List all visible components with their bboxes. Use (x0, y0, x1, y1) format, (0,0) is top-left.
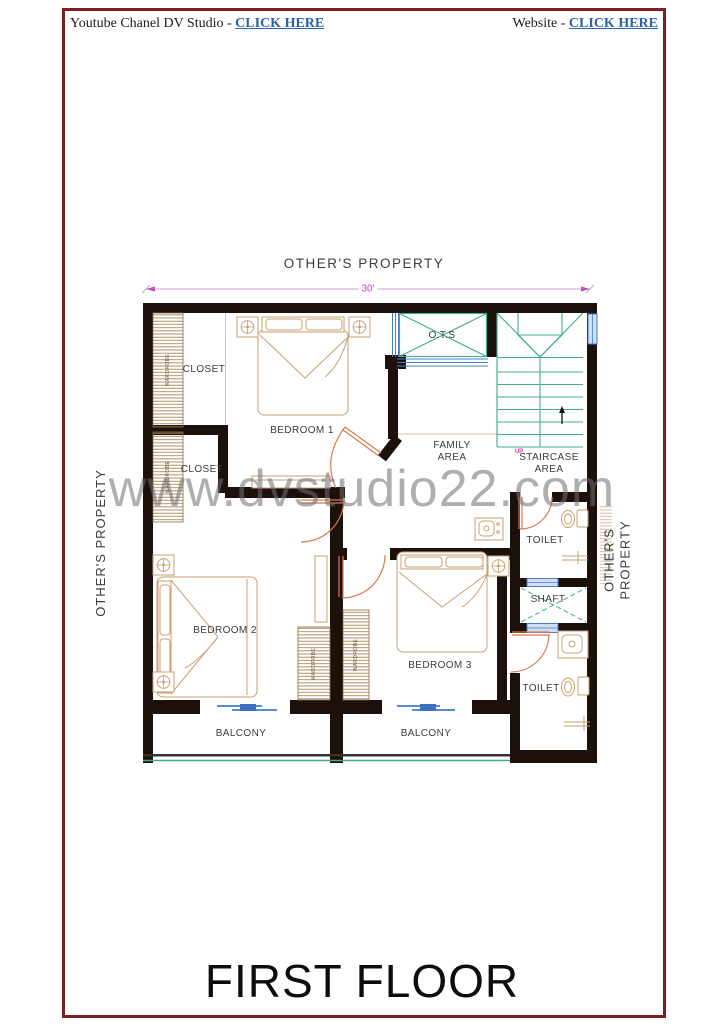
wash-basin (475, 518, 503, 540)
toilet2-label: TOILET (522, 683, 559, 695)
staircase (497, 313, 583, 447)
stair-direction-arrow (559, 406, 565, 424)
balcony1-label: BALCONY (216, 728, 267, 740)
toilet2-fixtures (558, 631, 590, 731)
bed-1 (258, 317, 348, 415)
bedroom2-label: BEDROOM 2 (193, 625, 257, 637)
ots-label: O.T.S (428, 330, 455, 342)
others-property-right-label: OTHER'S PROPERTY (601, 507, 632, 614)
shaft-label: SHAFT (531, 594, 566, 606)
floor-plan-title: FIRST FLOOR (205, 954, 519, 1008)
wardrobe4-label: WARDROBE (353, 639, 359, 671)
others-property-left-label: OTHER'S PROPERTY (93, 469, 109, 617)
bedroom3-label: BEDROOM 3 (408, 660, 472, 672)
top-dimension-value: 30' (358, 284, 377, 295)
closet1-label: CLOSET (183, 364, 225, 376)
bed-3 (397, 552, 487, 652)
others-property-top-label: OTHER'S PROPERTY (284, 256, 445, 272)
toilet1-label: TOILET (526, 535, 563, 547)
bed-3-side-table (488, 556, 509, 576)
bedroom1-label: BEDROOM 1 (270, 425, 334, 437)
watermark-text: www.dvstudio22.com (109, 459, 615, 519)
wardrobe1-label: WARDROBE (165, 354, 171, 386)
stair-up-label: UP (515, 449, 523, 455)
balcony2-label: BALCONY (401, 728, 452, 740)
wardrobe3-label: WARDROBE (311, 648, 317, 680)
